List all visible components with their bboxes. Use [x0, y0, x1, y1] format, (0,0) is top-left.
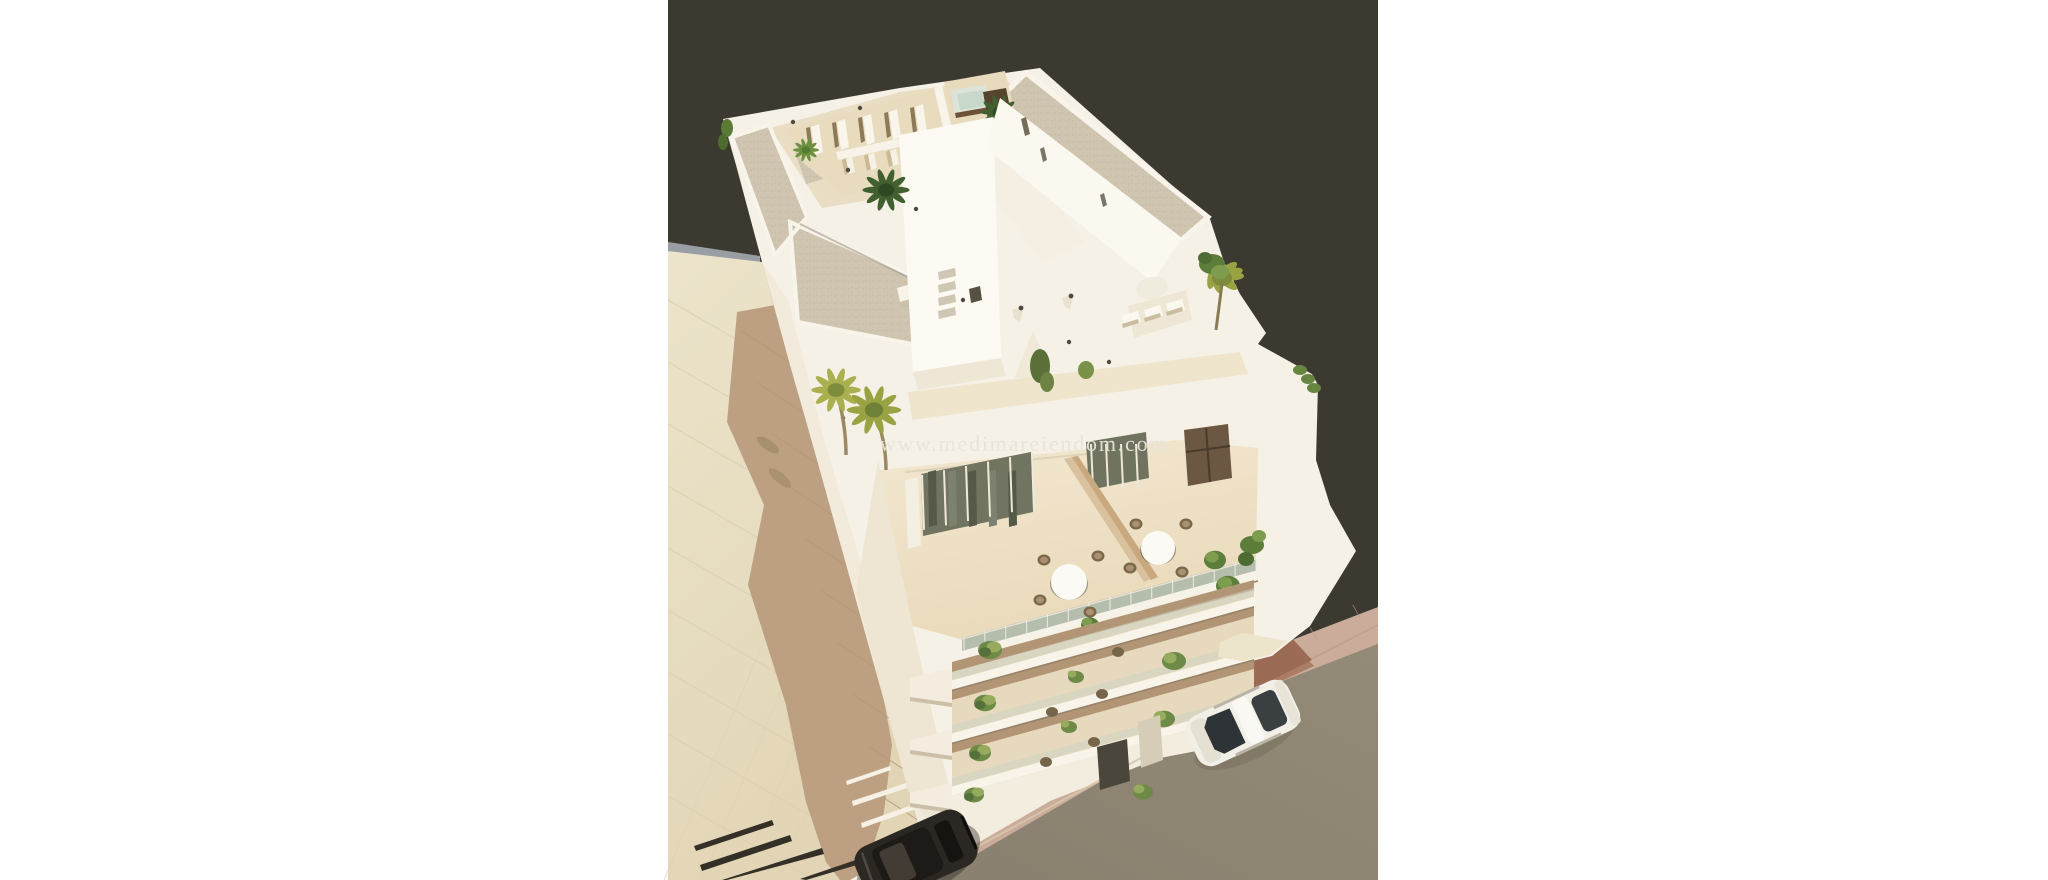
- svg-text:www.medimareiendom.com: www.medimareiendom.com: [880, 431, 1169, 456]
